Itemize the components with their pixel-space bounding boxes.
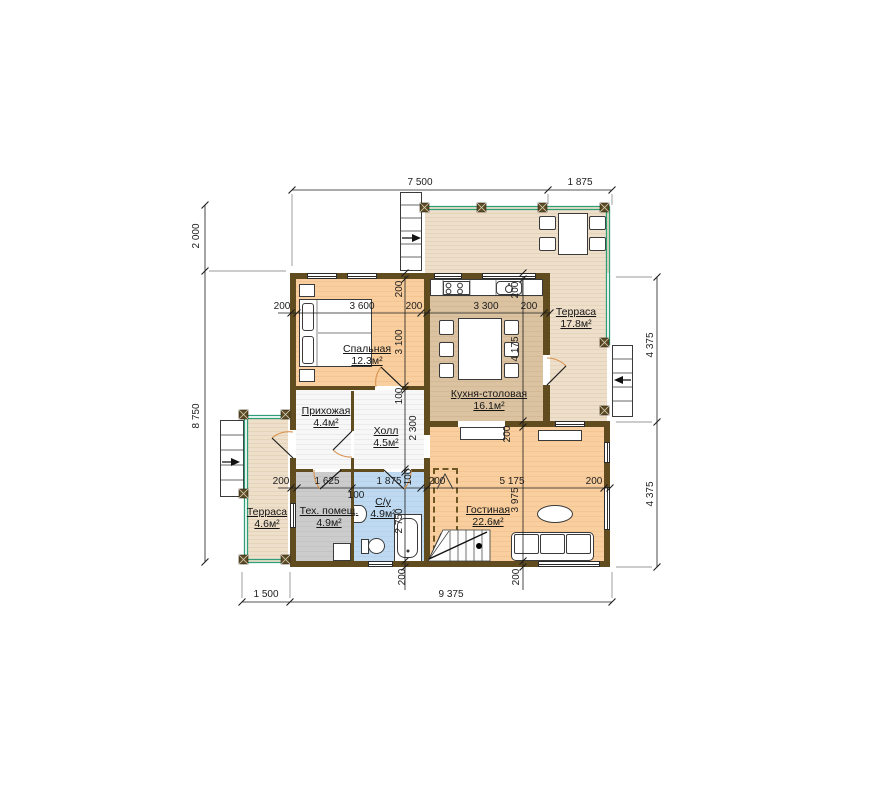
dim-top-terrace: 1 875 (558, 177, 602, 188)
window-bedroom-2 (347, 273, 377, 279)
door-opening-terrace-west (290, 430, 296, 458)
dining-chair (439, 363, 454, 378)
window-kitchen-2 (482, 273, 536, 279)
nightstand-1 (299, 284, 315, 297)
room-label-kitchen: Кухня-столовая16.1м² (429, 388, 549, 412)
dim-right-lower: 4 375 (645, 459, 657, 529)
entry-steps-left (220, 420, 244, 497)
dim-wall-100: 100 (334, 490, 378, 501)
dim-col-right-3: 3 975 (510, 465, 522, 535)
dim-col-left-6: 200 (397, 542, 409, 612)
dim-row-lower-3: 200 (415, 476, 459, 487)
terrace-chair (539, 216, 556, 230)
room-label-living: Гостиная22.6м² (428, 504, 548, 528)
dim-col-right-1: 4 175 (510, 314, 522, 384)
dim-row-upper-0: 200 (260, 301, 304, 312)
dim-col-right-2: 200 (502, 399, 514, 469)
dim-right-upper: 4 375 (645, 310, 657, 380)
dim-col-left-2: 100 (394, 361, 406, 431)
dining-chair (439, 342, 454, 357)
room-label-bedroom: Спальная12.3м² (307, 343, 427, 367)
nightstand-2 (299, 369, 315, 382)
dining-table (458, 318, 502, 380)
room-label-hall: Холл4.5м² (326, 425, 446, 449)
window-living-east-1 (604, 442, 610, 463)
wall-bedroom-south (290, 386, 430, 390)
window-kitchen-1 (434, 273, 462, 279)
passage-kitchen-living (458, 421, 505, 427)
entry-steps-right (612, 345, 633, 417)
toilet-bowl (368, 538, 385, 554)
terrace-table (558, 213, 588, 255)
terrace-chair (539, 237, 556, 251)
stove (443, 281, 470, 295)
window-living-south (538, 561, 600, 567)
window-living-north (555, 421, 585, 427)
terrace-chair (589, 216, 606, 230)
floor-plan-canvas: Спальная12.3м² Прихожая4.4м² Холл4.5м² К… (0, 0, 876, 812)
window-wc-south (368, 561, 393, 567)
door-opening-tech (313, 469, 340, 472)
dim-row-upper-1: 3 600 (340, 301, 384, 312)
sofa-cushion (566, 534, 591, 554)
door-opening-kitchen-terrace (543, 355, 550, 385)
dim-row-upper-3: 3 300 (464, 301, 508, 312)
dim-left-house: 8 750 (191, 381, 203, 451)
dim-row-lower-1: 1 625 (305, 476, 349, 487)
terrace-left-floor (248, 418, 288, 563)
dim-bottom-main: 9 375 (429, 589, 473, 600)
window-bedroom-1 (307, 273, 337, 279)
dim-top-main: 7 500 (398, 177, 442, 188)
water-heater (333, 543, 351, 561)
dim-col-right-4: 200 (511, 542, 523, 612)
cabinet (538, 430, 582, 441)
terrace-top-side-floor (550, 273, 607, 421)
dim-row-lower-5: 200 (572, 476, 616, 487)
window-living-east-2 (604, 487, 610, 530)
dim-bottom-terrace: 1 500 (244, 589, 288, 600)
sofa-cushion (540, 534, 565, 554)
dim-row-lower-0: 200 (259, 476, 303, 487)
bar-counter (460, 427, 505, 440)
dim-left-offset: 2 000 (191, 201, 203, 271)
dining-chair (439, 320, 454, 335)
terrace-chair (589, 237, 606, 251)
